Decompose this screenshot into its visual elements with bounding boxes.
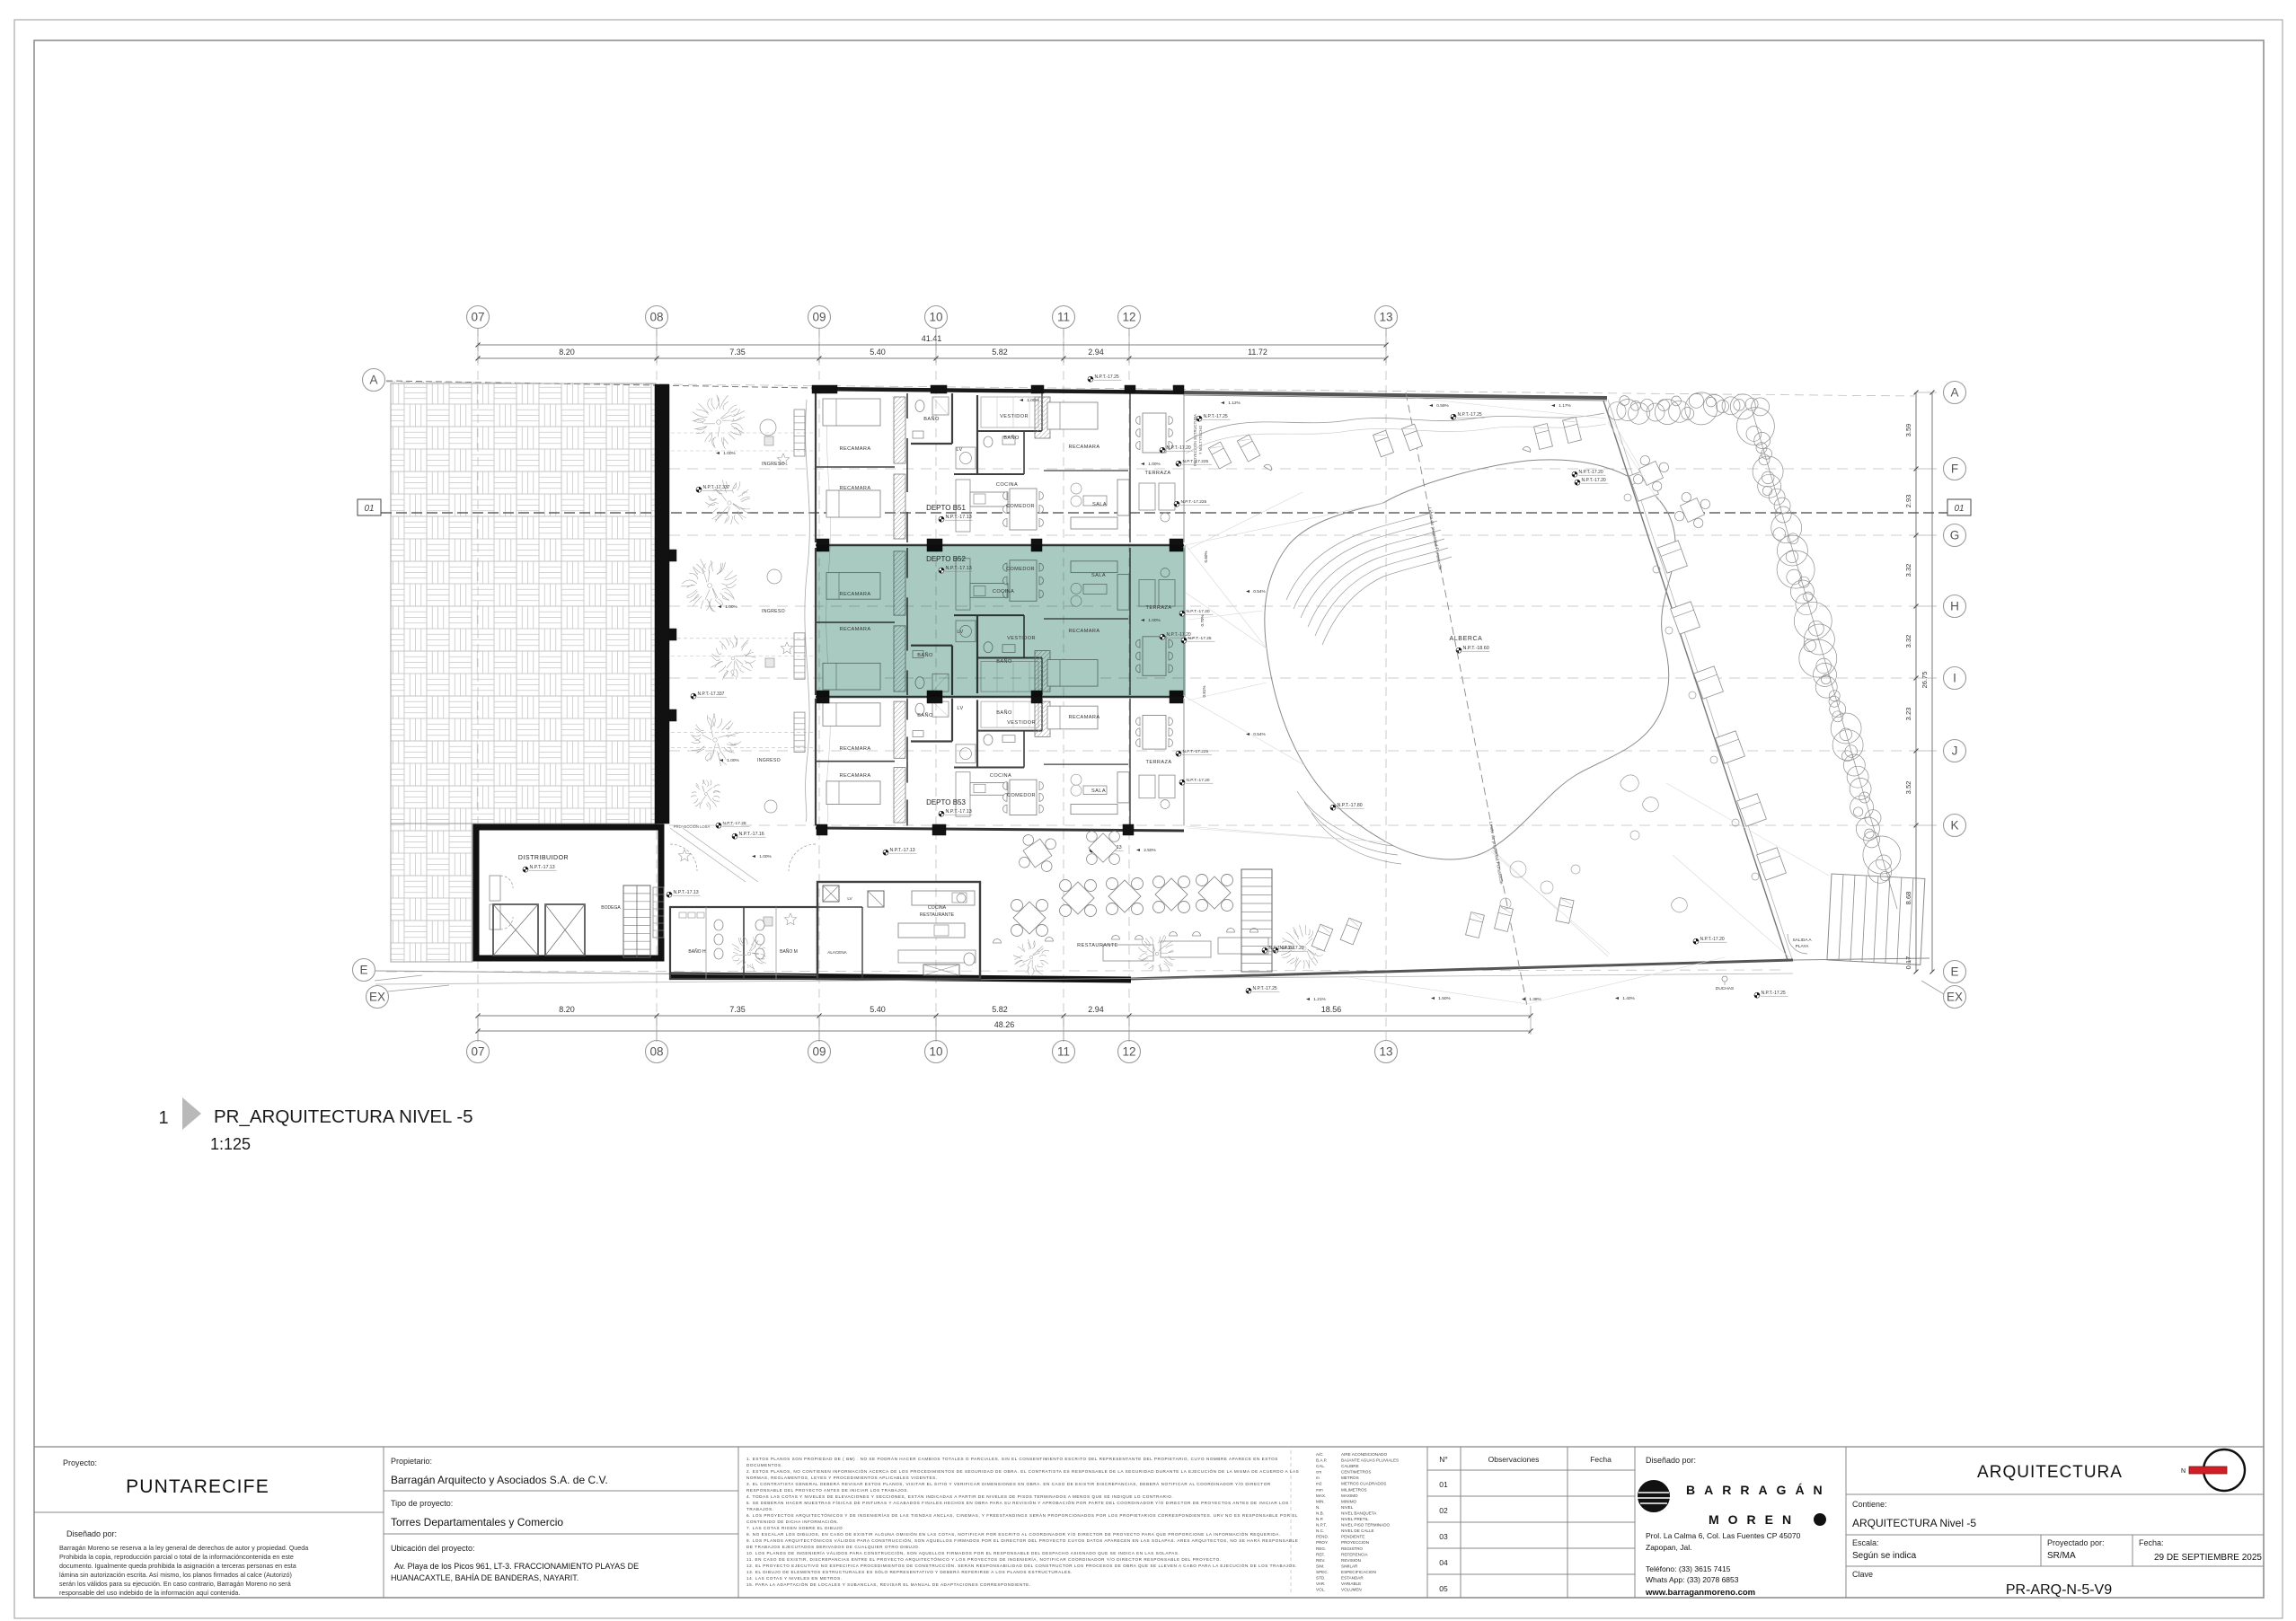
svg-text:SR/MA: SR/MA <box>2047 1551 2076 1561</box>
svg-text:Según se indica: Según se indica <box>1852 1551 1917 1561</box>
svg-text:ALACENA: ALACENA <box>827 950 847 955</box>
svg-text:PR_ARQUITECTURA NIVEL -5: PR_ARQUITECTURA NIVEL -5 <box>214 1106 473 1127</box>
svg-text:Clave: Clave <box>1852 1570 1873 1579</box>
svg-text:A/C: A/C <box>1316 1452 1323 1457</box>
svg-text:H: H <box>1950 600 1959 613</box>
svg-text:0.60%: 0.60% <box>1204 551 1208 562</box>
svg-text:Torres Departamentales y Comer: Torres Departamentales y Comercio <box>391 1516 563 1528</box>
svg-text:NIVEL: NIVEL <box>1341 1505 1354 1510</box>
svg-text:A: A <box>1950 386 1958 400</box>
svg-text:serán los válidos para su ejec: serán los válidos para su ejecución. En … <box>59 1580 291 1588</box>
svg-text:METROS: METROS <box>1341 1476 1359 1480</box>
svg-text:0.81%: 0.81% <box>1202 685 1206 697</box>
svg-text:BAÑO: BAÑO <box>996 658 1012 665</box>
svg-text:5.82: 5.82 <box>992 1005 1008 1014</box>
svg-text:INGRESO: INGRESO <box>757 758 781 763</box>
svg-text:RESPONSABLE DEL PROYECTO ANTES: RESPONSABLE DEL PROYECTO ANTES DE INICIA… <box>746 1488 909 1493</box>
svg-text:5.82: 5.82 <box>992 348 1008 357</box>
svg-text:1.12%: 1.12% <box>1228 401 1241 406</box>
svg-text:RECAMARA: RECAMARA <box>1069 445 1100 450</box>
svg-text:DEPTO B51: DEPTO B51 <box>926 504 966 512</box>
svg-text:Límite de propiedad Puntarecif: Límite de propiedad Puntarecife <box>1426 507 1443 570</box>
svg-text:REVISION: REVISION <box>1341 1558 1361 1563</box>
svg-text:Proyectado por:: Proyectado por: <box>2047 1538 2105 1547</box>
svg-text:BARRAGÁN: BARRAGÁN <box>1686 1483 1832 1497</box>
svg-text:N.P.T.-17.20: N.P.T.-17.20 <box>1187 778 1210 783</box>
svg-text:N.P.T.-17.13: N.P.T.-17.13 <box>890 848 915 853</box>
svg-text:SIMILAR: SIMILAR <box>1341 1564 1358 1568</box>
svg-text:Fecha: Fecha <box>1590 1455 1612 1464</box>
svg-text:2.93: 2.93 <box>1904 495 1912 508</box>
svg-text:NIVEL PRETIL: NIVEL PRETIL <box>1341 1517 1369 1521</box>
svg-text:PLAYA: PLAYA <box>1796 944 1810 949</box>
svg-text:3. EL CONTRATISTA GENERAL DEB: 3. EL CONTRATISTA GENERAL DEBERÁ REVISAR… <box>746 1481 1271 1486</box>
svg-text:COMEDOR: COMEDOR <box>1006 504 1035 509</box>
svg-text:2.94: 2.94 <box>1088 348 1104 357</box>
svg-text:PUNTARECIFE: PUNTARECIFE <box>126 1476 269 1497</box>
svg-text:CENTIMETROS: CENTIMETROS <box>1341 1470 1371 1475</box>
svg-text:8.20: 8.20 <box>559 348 575 357</box>
svg-text:SPEC.: SPEC. <box>1316 1570 1329 1574</box>
svg-text:MAX.: MAX. <box>1316 1493 1326 1498</box>
svg-text:MAXIMO: MAXIMO <box>1341 1493 1358 1498</box>
svg-text:10: 10 <box>929 1045 942 1059</box>
svg-text:BAJANTE AGUAS PLUVIALES: BAJANTE AGUAS PLUVIALES <box>1341 1458 1399 1463</box>
svg-text:N.P.T.-17.80: N.P.T.-17.80 <box>1338 803 1363 808</box>
svg-text:BAÑO: BAÑO <box>917 712 933 718</box>
svg-text:3.32: 3.32 <box>1904 635 1912 648</box>
svg-text:Diseñado por:: Diseñado por: <box>66 1529 117 1538</box>
svg-text:B.A.P.: B.A.P. <box>1316 1458 1327 1463</box>
svg-text:PROY.: PROY. <box>1316 1540 1329 1545</box>
svg-text:REG.: REG. <box>1316 1546 1326 1551</box>
svg-text:mm: mm <box>1316 1487 1323 1492</box>
svg-text:6. LOS PROYECTOS ARQUITECTÓNI: 6. LOS PROYECTOS ARQUITECTÓNICOS Y DE IN… <box>746 1512 1298 1518</box>
svg-text:Proyecto:: Proyecto: <box>63 1458 97 1467</box>
svg-text:N.P.: N.P. <box>1316 1517 1323 1521</box>
svg-text:Contiene:: Contiene: <box>1852 1500 1887 1509</box>
svg-text:BAÑO: BAÑO <box>1003 435 1020 441</box>
svg-text:VOL.: VOL. <box>1316 1588 1325 1592</box>
svg-text:E: E <box>359 964 367 977</box>
svg-text:BAÑO: BAÑO <box>923 416 940 422</box>
svg-text:SALA: SALA <box>1091 788 1106 794</box>
svg-text:RECAMARA: RECAMARA <box>840 592 871 597</box>
svg-text:11. EN CASO DE EXISTIR, DISCR: 11. EN CASO DE EXISTIR, DISCREPANCIAS EN… <box>746 1556 1222 1562</box>
svg-text:DE TRABAJOS EJECUTADOS DERIVAD: DE TRABAJOS EJECUTADOS DERIVADOS DE CUAL… <box>746 1545 920 1549</box>
svg-text:NIVEL DE CALLE: NIVEL DE CALLE <box>1341 1528 1374 1533</box>
svg-text:13. EL DIBUJO DE ELEMENTOS ES: 13. EL DIBUJO DE ELEMENTOS ESTRUCTURALES… <box>746 1569 1073 1574</box>
svg-text:08: 08 <box>649 1045 663 1059</box>
svg-text:HUANACAXTLE, BAHÍA DE BANDERAS: HUANACAXTLE, BAHÍA DE BANDERAS, NAYARIT. <box>391 1573 578 1582</box>
svg-text:INGRESO: INGRESO <box>762 462 785 467</box>
svg-text:N.P.T.-17.25: N.P.T.-17.25 <box>1204 414 1228 419</box>
svg-text:N: N <box>2181 1468 2186 1475</box>
svg-text:N.P.T.-17.20: N.P.T.-17.20 <box>1582 478 1606 483</box>
svg-text:SIM.: SIM. <box>1316 1564 1324 1568</box>
svg-text:09: 09 <box>812 1045 826 1059</box>
svg-text:26.75: 26.75 <box>1921 672 1929 689</box>
svg-text:1.17%: 1.17% <box>1559 403 1571 409</box>
svg-text:REGISTRO: REGISTRO <box>1341 1546 1363 1551</box>
svg-text:5. SE DEBERÁN HACER MUESTRAS: 5. SE DEBERÁN HACER MUESTRAS FÍSICAS DE … <box>746 1500 1289 1505</box>
svg-text:8.68: 8.68 <box>1904 892 1912 905</box>
svg-text:TERRAZA: TERRAZA <box>1146 605 1172 611</box>
svg-text:PROYECCION: PROYECCION <box>1341 1540 1369 1545</box>
svg-text:Límite de propiedad Puntarecif: Límite de propiedad Puntarecife <box>1488 821 1504 885</box>
svg-text:SALA: SALA <box>1092 502 1107 507</box>
svg-text:29 DE SEPTIEMBRE 2025: 29 DE SEPTIEMBRE 2025 <box>2154 1553 2262 1563</box>
svg-text:12. EL PROYECTO EJECUTIVO NO: 12. EL PROYECTO EJECUTIVO NO ESPECIFICA … <box>746 1563 1297 1568</box>
svg-text:N.C.: N.C. <box>1316 1528 1324 1533</box>
svg-text:N.P.T.-17.25: N.P.T.-17.25 <box>1762 991 1786 996</box>
svg-text:1.21%: 1.21% <box>1313 997 1326 1002</box>
svg-text:MOREN: MOREN <box>1709 1512 1800 1527</box>
svg-text:01: 01 <box>1439 1480 1448 1489</box>
svg-text:1.00%: 1.00% <box>1148 618 1161 623</box>
svg-text:3.59: 3.59 <box>1904 424 1912 437</box>
svg-text:J: J <box>1952 744 1958 758</box>
svg-text:N.P.T.-17.13: N.P.T.-17.13 <box>946 809 972 815</box>
svg-text:N°: N° <box>1439 1455 1448 1464</box>
svg-text:15. PARA LA ADAPTACIÓN DE LOC: 15. PARA LA ADAPTACIÓN DE LOCALES Y SUBA… <box>746 1581 1031 1587</box>
svg-text:NORMAS, REGLAMENTOS, LEYES Y P: NORMAS, REGLAMENTOS, LEYES Y PROCEDIMIEN… <box>746 1476 938 1480</box>
svg-text:10: 10 <box>929 311 942 324</box>
svg-text:m2: m2 <box>1316 1482 1322 1486</box>
svg-text:ESTANDAR: ESTANDAR <box>1341 1576 1364 1581</box>
svg-text:COCINA: COCINA <box>993 589 1014 595</box>
svg-text:TRABAJOS.: TRABAJOS. <box>746 1507 773 1511</box>
svg-text:N.P.T.: N.P.T. <box>1316 1523 1327 1528</box>
svg-text:Fecha:: Fecha: <box>2139 1538 2164 1547</box>
svg-text:VOLUMEN: VOLUMEN <box>1341 1588 1362 1592</box>
svg-text:m: m <box>1316 1476 1320 1480</box>
svg-text:NIVEL BANQUETA: NIVEL BANQUETA <box>1341 1511 1377 1516</box>
svg-text:N.P.T.-17.20: N.P.T.-17.20 <box>1579 470 1603 475</box>
svg-text:0.54%: 0.54% <box>1253 732 1266 737</box>
svg-text:TERRAZA: TERRAZA <box>1146 760 1172 765</box>
svg-text:BAÑO H: BAÑO H <box>688 948 706 955</box>
svg-text:DEPTO B52: DEPTO B52 <box>926 555 966 563</box>
svg-text:REFERENCIA: REFERENCIA <box>1341 1552 1369 1556</box>
svg-text:07: 07 <box>471 1045 484 1059</box>
svg-text:PROYECCIÓN LOSA: PROYECCIÓN LOSA <box>674 824 711 829</box>
svg-text:N.P.T.-17.20: N.P.T.-17.20 <box>1269 946 1294 951</box>
svg-text:lámina sin autorización escrit: lámina sin autorización escrita. Así mis… <box>59 1571 292 1579</box>
svg-text:VESTIDOR: VESTIDOR <box>1007 720 1036 726</box>
svg-text:0.17: 0.17 <box>1904 956 1912 970</box>
svg-text:CALIBRE: CALIBRE <box>1341 1464 1359 1468</box>
svg-text:Diseñado por:: Diseñado por: <box>1646 1456 1696 1465</box>
svg-text:DISTRIBUIDOR: DISTRIBUIDOR <box>518 855 569 861</box>
svg-text:N.P.T.-17.25: N.P.T.-17.25 <box>1095 374 1119 380</box>
svg-text:2.94: 2.94 <box>1088 1005 1104 1014</box>
svg-text:BAÑO: BAÑO <box>996 709 1012 716</box>
svg-text:BAÑO: BAÑO <box>917 652 933 658</box>
svg-text:1.50%: 1.50% <box>1438 996 1451 1001</box>
svg-text:VAR.: VAR. <box>1316 1581 1325 1586</box>
svg-text:documento. Igualmente queda pr: documento. Igualmente queda prohibida la… <box>59 1562 296 1570</box>
svg-text:7.35: 7.35 <box>729 1005 746 1014</box>
svg-text:RECAMARA: RECAMARA <box>840 627 871 632</box>
svg-text:48.26: 48.26 <box>994 1020 1015 1029</box>
svg-text:1.00%: 1.00% <box>727 758 739 763</box>
svg-text:7. LAS COTAS RIGEN SOBRE EL: 7. LAS COTAS RIGEN SOBRE EL DIBUJO <box>746 1526 843 1530</box>
svg-text:4. TODAS LAS COTAS Y NIVELES: 4. TODAS LAS COTAS Y NIVELES DE ELEVACIO… <box>746 1493 1173 1499</box>
svg-text:ARQUITECTURA Nivel -5: ARQUITECTURA Nivel -5 <box>1852 1517 1976 1529</box>
svg-text:F: F <box>1951 463 1958 476</box>
svg-text:1.00%: 1.00% <box>725 604 737 610</box>
svg-text:N.P.T.-17.225: N.P.T.-17.225 <box>1181 499 1207 505</box>
svg-text:VARIABLE: VARIABLE <box>1341 1581 1361 1586</box>
svg-text:Teléfono: (33) 3615 7415: Teléfono: (33) 3615 7415 <box>1646 1564 1731 1573</box>
svg-text:MILIMETROS: MILIMETROS <box>1341 1487 1367 1492</box>
svg-text:14. LAS COTAS Y NIVELES EN ME: 14. LAS COTAS Y NIVELES EN METROS. <box>746 1576 843 1581</box>
svg-text:COCINA: COCINA <box>990 773 1011 779</box>
svg-text:METROS CUADRADOS: METROS CUADRADOS <box>1341 1482 1386 1486</box>
svg-text:10. LOS PLANOS DE INGENIERÍA: 10. LOS PLANOS DE INGENIERÍA VÁLIDOS PAR… <box>746 1550 1179 1555</box>
svg-text:EX: EX <box>1947 991 1963 1004</box>
svg-text:NIVEL PISO TERMINADO: NIVEL PISO TERMINADO <box>1341 1523 1391 1528</box>
svg-text:LV: LV <box>957 630 963 635</box>
svg-text:03: 03 <box>1439 1532 1448 1541</box>
svg-text:Prohibida la copia, reproducci: Prohibida la copia, reproducción parcial… <box>59 1553 294 1561</box>
svg-text:N.P.T.-17.13: N.P.T.-17.13 <box>530 865 555 870</box>
svg-text:01: 01 <box>1954 504 1964 514</box>
svg-text:1.00%: 1.00% <box>1148 462 1161 467</box>
svg-text:LV: LV <box>957 706 963 711</box>
svg-text:Prol. La Calma 6, Col. Las Fue: Prol. La Calma 6, Col. Las Fuentes CP 45… <box>1646 1531 1801 1540</box>
svg-text:AIRE ACONDICIONADO: AIRE ACONDICIONADO <box>1341 1452 1387 1457</box>
svg-text:EX: EX <box>369 991 385 1004</box>
svg-text:RECAMARA: RECAMARA <box>1069 629 1100 634</box>
svg-text:N.P.T.-17.13: N.P.T.-17.13 <box>674 890 699 895</box>
svg-text:18.56: 18.56 <box>1321 1005 1342 1014</box>
svg-text:0.70%: 0.70% <box>1200 614 1205 626</box>
svg-text:13: 13 <box>1379 311 1392 324</box>
svg-text:SALIDA A: SALIDA A <box>1792 938 1812 943</box>
svg-text:1. ESTOS PLANOS SON PROPIEDAD: 1. ESTOS PLANOS SON PROPIEDAD DE ( BM) .… <box>746 1456 1278 1461</box>
svg-text:5.40: 5.40 <box>870 1005 886 1014</box>
svg-text:2.50%: 2.50% <box>1144 848 1156 853</box>
svg-text:N.P.T.-17.16: N.P.T.-17.16 <box>739 832 764 837</box>
svg-text:DOCUMENTOS.: DOCUMENTOS. <box>746 1463 782 1467</box>
svg-text:COMEDOR: COMEDOR <box>1006 567 1035 572</box>
svg-text:Propietario:: Propietario: <box>391 1457 432 1466</box>
svg-text:G: G <box>1950 529 1960 542</box>
svg-text:N.P.T.-17.28: N.P.T.-17.28 <box>723 821 746 826</box>
svg-text:02: 02 <box>1439 1506 1448 1515</box>
svg-text:LV: LV <box>847 896 852 901</box>
svg-text:05: 05 <box>1439 1584 1448 1593</box>
svg-text:N.P.T.-17.25: N.P.T.-17.25 <box>1188 636 1212 641</box>
svg-text:ALBERCA: ALBERCA <box>1450 636 1483 642</box>
svg-text:RECAMARA: RECAMARA <box>840 446 871 452</box>
svg-text:N.P.T.-17.13: N.P.T.-17.13 <box>946 566 972 571</box>
svg-text:12: 12 <box>1122 311 1135 324</box>
svg-text:8.20: 8.20 <box>559 1005 575 1014</box>
svg-text:ARQUITECTURA: ARQUITECTURA <box>1977 1463 2123 1482</box>
svg-text:STD.: STD. <box>1316 1576 1325 1581</box>
svg-text:N.B.: N.B. <box>1316 1511 1324 1516</box>
svg-text:N.P.T.-17.13: N.P.T.-17.13 <box>946 515 972 520</box>
svg-text:REV.: REV. <box>1316 1558 1325 1563</box>
svg-text:RECAMARA: RECAMARA <box>1069 715 1100 720</box>
svg-text:N.P.T.-17.225: N.P.T.-17.225 <box>1183 749 1209 754</box>
svg-text:BAÑO M: BAÑO M <box>780 948 798 955</box>
svg-text:1.00%: 1.00% <box>723 451 736 456</box>
svg-text:RESTAURANTE: RESTAURANTE <box>1077 943 1118 948</box>
svg-text:Tipo de proyecto:: Tipo de proyecto: <box>391 1499 453 1508</box>
svg-text:Barragán Moreno se reserva a l: Barragán Moreno se reserva a la ley gene… <box>59 1544 308 1552</box>
svg-text:MIN.: MIN. <box>1316 1499 1325 1503</box>
svg-text:TERRAZA: TERRAZA <box>1145 471 1171 476</box>
svg-text:COMEDOR: COMEDOR <box>1007 793 1036 798</box>
svg-text:12: 12 <box>1122 1045 1135 1059</box>
svg-text:RECAMARA: RECAMARA <box>840 486 871 491</box>
svg-text:3.23: 3.23 <box>1904 708 1912 721</box>
svg-text:LV: LV <box>956 447 962 453</box>
svg-text:DUCHAS: DUCHAS <box>1716 986 1734 991</box>
svg-text:5.40: 5.40 <box>870 348 886 357</box>
svg-text:8. NO ESCALAR LOS DIBUJOS, EN: 8. NO ESCALAR LOS DIBUJOS, EN CASO DE EX… <box>746 1531 1281 1537</box>
svg-text:cm: cm <box>1316 1470 1321 1475</box>
svg-text:REF.: REF. <box>1316 1552 1325 1556</box>
svg-text:1.00%: 1.00% <box>759 854 772 859</box>
svg-text:07: 07 <box>471 311 484 324</box>
svg-text:BODEGA: BODEGA <box>601 905 621 911</box>
svg-text:Escala:: Escala: <box>1852 1538 1879 1547</box>
svg-text:CAL.: CAL. <box>1316 1464 1325 1468</box>
svg-text:3.52: 3.52 <box>1904 781 1912 795</box>
svg-text:CONTENIDO DE DICHA INFORMACIÓN: CONTENIDO DE DICHA INFORMACIÓN. <box>746 1519 839 1524</box>
svg-text:I: I <box>1953 672 1956 685</box>
svg-text:Zapopan, Jal.: Zapopan, Jal. <box>1646 1543 1692 1552</box>
svg-text:COCINA: COCINA <box>928 905 947 911</box>
svg-text:1.40%: 1.40% <box>1622 996 1635 1001</box>
svg-text:VESTIDOR: VESTIDOR <box>1000 414 1029 419</box>
svg-text:1: 1 <box>158 1108 168 1128</box>
svg-text:01: 01 <box>364 504 374 514</box>
svg-text:11.72: 11.72 <box>1248 348 1267 357</box>
svg-text:RESTAURANTE: RESTAURANTE <box>920 912 955 918</box>
svg-text:N.: N. <box>1316 1505 1320 1510</box>
svg-text:RECAMARA: RECAMARA <box>840 773 871 779</box>
svg-text:3.32: 3.32 <box>1904 564 1912 577</box>
svg-text:0.59%: 0.59% <box>1436 403 1449 409</box>
svg-text:N.P.T.-17.25: N.P.T.-17.25 <box>1253 986 1277 991</box>
svg-text:SALA: SALA <box>1091 573 1106 578</box>
svg-text:Y MULTYTECHO: Y MULTYTECHO <box>1198 425 1203 454</box>
svg-text:DEPTO B53: DEPTO B53 <box>926 798 966 806</box>
svg-text:Observaciones: Observaciones <box>1488 1455 1540 1464</box>
svg-text:N.P.T.-17.20: N.P.T.-17.20 <box>1167 445 1191 451</box>
svg-text:13: 13 <box>1379 1045 1392 1059</box>
svg-text:9. LOS PLANOS ARQUITECTÓNICOS: 9. LOS PLANOS ARQUITECTÓNICOS VÁLIDOS PA… <box>746 1537 1298 1543</box>
svg-text:2. ESTOS PLANOS, NO CONTIENEN: 2. ESTOS PLANOS, NO CONTIENEN INFORMACIÓ… <box>746 1468 1299 1474</box>
svg-text:PR-ARQ-N-5-V9: PR-ARQ-N-5-V9 <box>2006 1582 2112 1598</box>
svg-text:ESPECIFICACION: ESPECIFICACION <box>1341 1570 1376 1574</box>
svg-text:7.35: 7.35 <box>729 348 746 357</box>
svg-text:1.00%: 1.00% <box>1027 398 1039 403</box>
svg-text:Av. Playa de los Picos 961, LT: Av. Playa de los Picos 961, LT-3. FRACCI… <box>394 1562 639 1571</box>
svg-text:responsable del uso indebido d: responsable del uso indebido de la infor… <box>59 1589 240 1597</box>
svg-text:N.P.T.-17.225: N.P.T.-17.225 <box>1183 459 1209 464</box>
svg-text:N.P.T.-17.20: N.P.T.-17.20 <box>1187 609 1210 614</box>
svg-text:COCINA: COCINA <box>996 482 1018 488</box>
svg-text:K: K <box>1950 819 1958 833</box>
svg-text:N.P.T.-17.25: N.P.T.-17.25 <box>1458 412 1482 418</box>
svg-text:1.38%: 1.38% <box>1529 997 1541 1002</box>
svg-text:11: 11 <box>1057 1045 1070 1059</box>
svg-text:A: A <box>369 374 377 387</box>
svg-text:N.P.T.-17.337: N.P.T.-17.337 <box>698 692 725 697</box>
svg-text:0.54%: 0.54% <box>1253 589 1266 595</box>
svg-text:PEND.: PEND. <box>1316 1535 1329 1539</box>
svg-text:N.P.T.-17.337: N.P.T.-17.337 <box>703 485 730 490</box>
svg-text:04: 04 <box>1439 1558 1448 1567</box>
svg-text:MINIMO: MINIMO <box>1341 1499 1357 1503</box>
svg-text:Whats App: (33) 2078 6853: Whats App: (33) 2078 6853 <box>1646 1575 1739 1584</box>
svg-text:PROYECCIÓN ESTRUCTURA: PROYECCIÓN ESTRUCTURA <box>1193 414 1197 466</box>
svg-text:11: 11 <box>1057 311 1070 324</box>
svg-text:Ubicación del proyecto:: Ubicación del proyecto: <box>391 1544 475 1553</box>
svg-text:09: 09 <box>812 311 826 324</box>
svg-text:INGRESO: INGRESO <box>762 609 785 614</box>
svg-text:VESTIDOR: VESTIDOR <box>1007 636 1036 641</box>
svg-text:E: E <box>1950 965 1958 979</box>
svg-text:08: 08 <box>649 311 663 324</box>
svg-text:1:125: 1:125 <box>210 1135 251 1153</box>
svg-text:N.P.T.-17.20: N.P.T.-17.20 <box>1700 937 1725 942</box>
svg-text:41.41: 41.41 <box>922 334 942 343</box>
svg-text:Barragán Arquitecto y Asociado: Barragán Arquitecto y Asociados S.A. de … <box>391 1474 608 1486</box>
svg-text:PENDIENTE: PENDIENTE <box>1341 1535 1364 1539</box>
svg-text:www.barraganmoreno.com: www.barraganmoreno.com <box>1645 1588 1755 1598</box>
svg-text:N.P.T.-18.60: N.P.T.-18.60 <box>1463 646 1489 651</box>
svg-text:RECAMARA: RECAMARA <box>840 746 871 752</box>
